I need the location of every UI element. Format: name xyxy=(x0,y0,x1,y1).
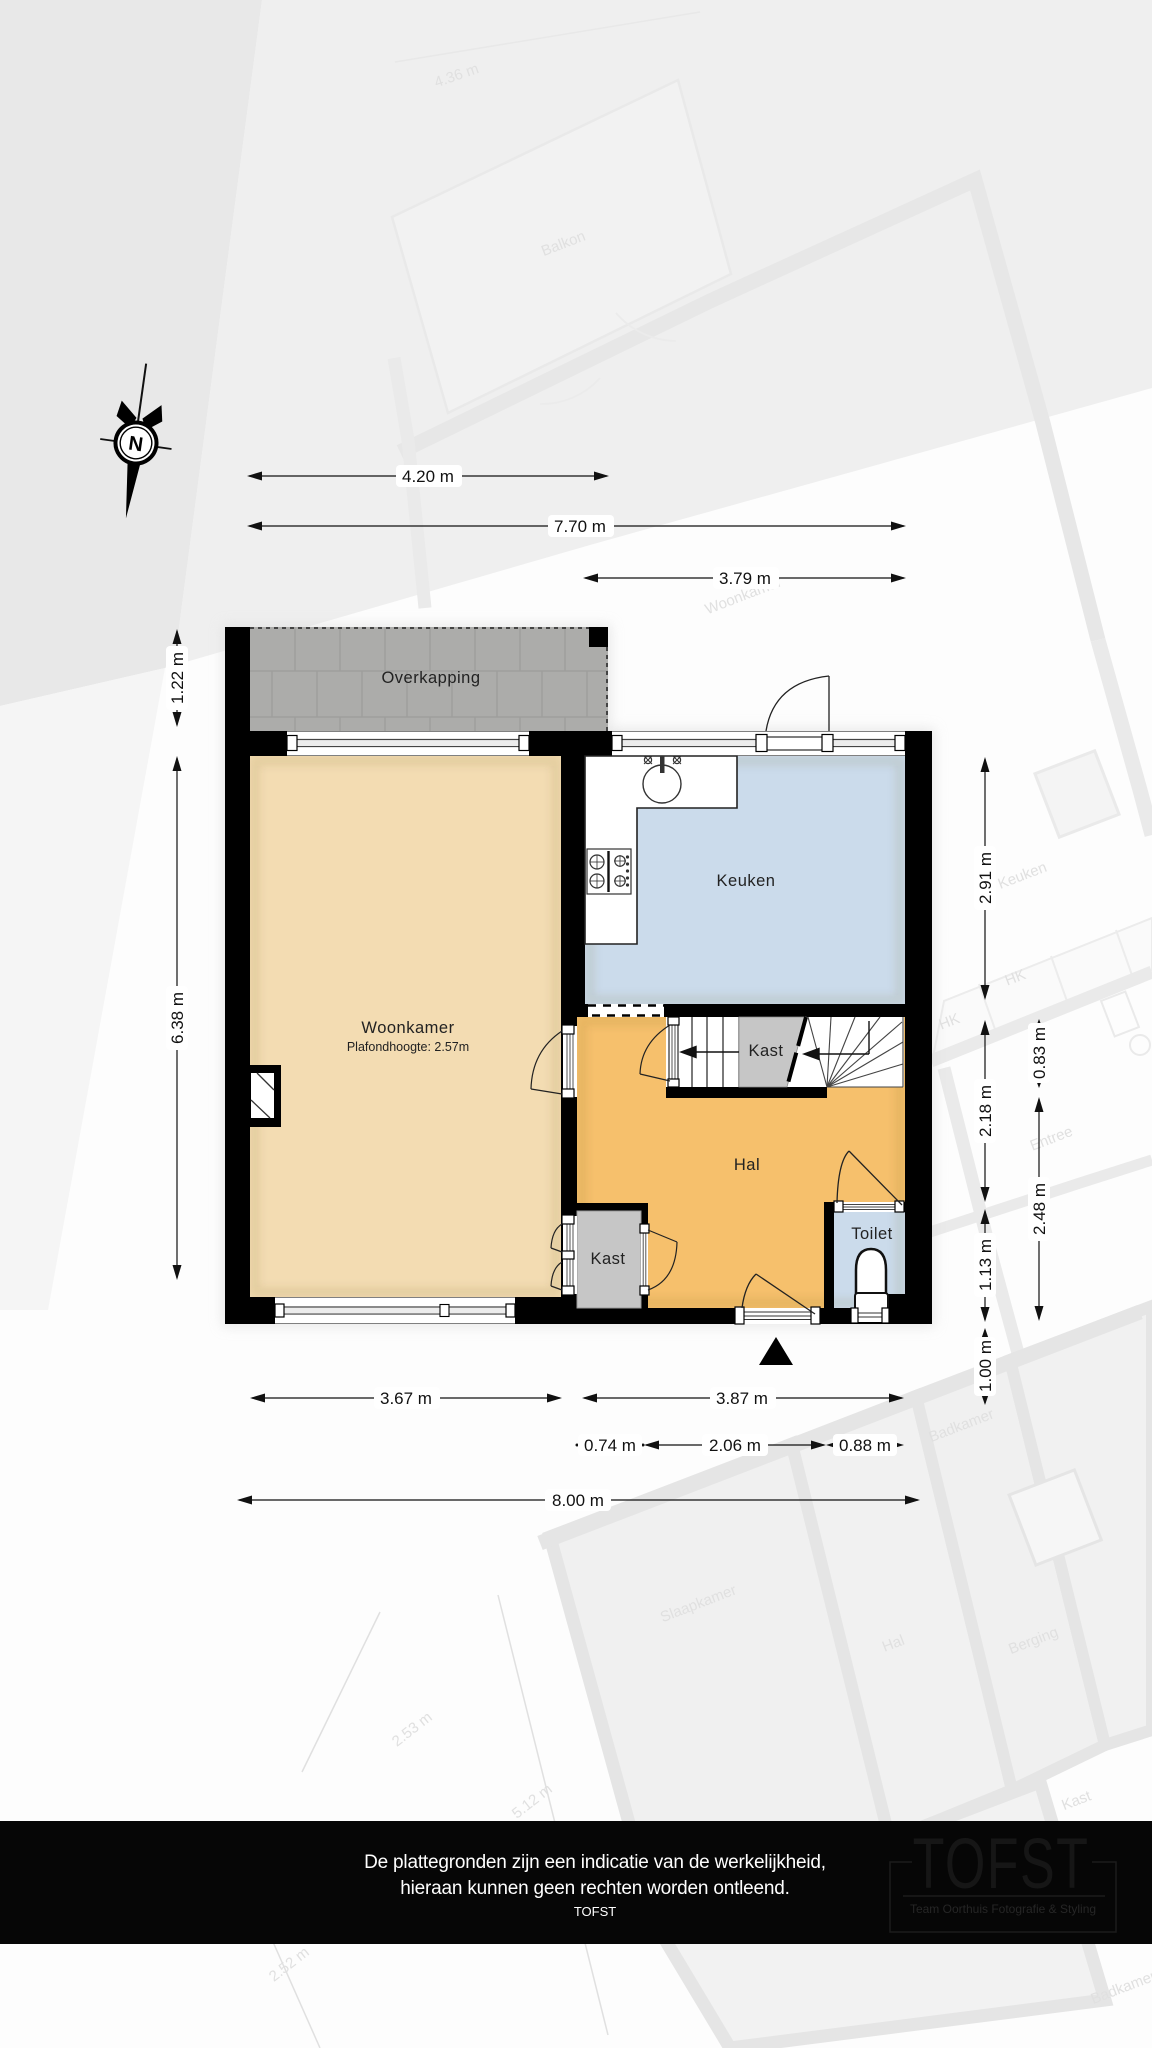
svg-text:0.74 m: 0.74 m xyxy=(584,1436,636,1455)
svg-text:2.48 m: 2.48 m xyxy=(1030,1183,1049,1235)
svg-text:TOFST: TOFST xyxy=(913,1824,1090,1904)
svg-text:3.87 m: 3.87 m xyxy=(716,1389,768,1408)
svg-text:2.91 m: 2.91 m xyxy=(976,852,995,904)
svg-text:N: N xyxy=(127,433,144,457)
svg-text:0.83 m: 0.83 m xyxy=(1030,1027,1049,1079)
svg-text:2.06 m: 2.06 m xyxy=(709,1436,761,1455)
svg-text:Woonkamer: Woonkamer xyxy=(361,1019,454,1037)
svg-text:De plattegronden zijn een indi: De plattegronden zijn een indicatie van … xyxy=(364,1852,826,1873)
svg-text:Plafondhoogte: 2.57m: Plafondhoogte: 2.57m xyxy=(347,1040,469,1054)
svg-text:0.88 m: 0.88 m xyxy=(839,1436,891,1455)
svg-text:4.20 m: 4.20 m xyxy=(402,467,454,486)
svg-text:3.79 m: 3.79 m xyxy=(719,569,771,588)
svg-text:1.22 m: 1.22 m xyxy=(168,652,187,704)
svg-text:Overkapping: Overkapping xyxy=(381,669,480,687)
svg-text:7.70 m: 7.70 m xyxy=(554,517,606,536)
svg-text:Toilet: Toilet xyxy=(851,1225,893,1243)
svg-text:8.00 m: 8.00 m xyxy=(552,1491,604,1510)
svg-text:2.18 m: 2.18 m xyxy=(976,1085,995,1137)
svg-text:Keuken: Keuken xyxy=(717,872,776,890)
svg-text:Kast: Kast xyxy=(748,1042,783,1060)
svg-text:6.38 m: 6.38 m xyxy=(168,992,187,1044)
svg-text:Hal: Hal xyxy=(734,1156,760,1174)
svg-text:1.00 m: 1.00 m xyxy=(976,1340,995,1392)
svg-text:TOFST: TOFST xyxy=(574,1904,616,1919)
svg-text:hieraan kunnen geen rechten wo: hieraan kunnen geen rechten worden ontle… xyxy=(400,1878,789,1899)
svg-text:Team Oorthuis Fotografie & Sty: Team Oorthuis Fotografie & Styling xyxy=(910,1902,1096,1916)
svg-text:1.13 m: 1.13 m xyxy=(976,1239,995,1291)
svg-text:3.67 m: 3.67 m xyxy=(380,1389,432,1408)
svg-text:Kast: Kast xyxy=(590,1250,625,1268)
